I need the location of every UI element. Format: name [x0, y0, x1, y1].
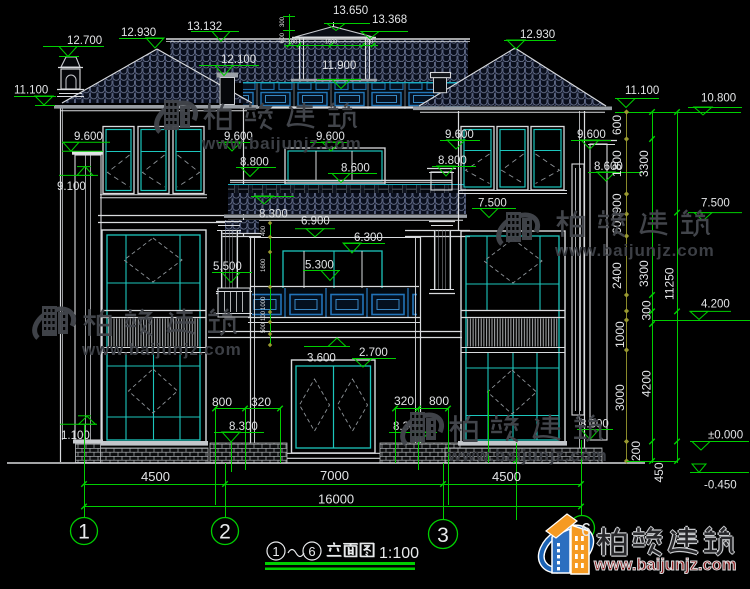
- svg-text:12.700: 12.700: [67, 35, 102, 47]
- svg-text:8.300: 8.300: [229, 421, 258, 433]
- svg-text:5.300: 5.300: [305, 260, 334, 272]
- svg-text:600: 600: [280, 32, 286, 43]
- svg-text:9.100: 9.100: [57, 181, 86, 193]
- svg-text:8.800: 8.800: [438, 155, 467, 167]
- svg-text:5.500: 5.500: [213, 261, 242, 273]
- svg-text:7.500: 7.500: [701, 198, 730, 210]
- svg-text:100: 100: [364, 40, 373, 46]
- svg-text:4.200: 4.200: [701, 299, 730, 311]
- svg-text:2: 2: [219, 521, 231, 544]
- svg-text:800: 800: [429, 394, 449, 408]
- svg-text:10.800: 10.800: [701, 93, 736, 105]
- svg-text:www.baijunjz.com: www.baijunjz.com: [554, 241, 715, 260]
- svg-text:1800: 1800: [610, 150, 624, 177]
- svg-text:300: 300: [640, 300, 654, 320]
- svg-text:3: 3: [437, 524, 449, 547]
- svg-text:9.600: 9.600: [577, 129, 606, 141]
- svg-text:1500: 1500: [325, 40, 337, 46]
- svg-text:-0.450: -0.450: [704, 480, 737, 492]
- svg-text:12.930: 12.930: [520, 29, 555, 41]
- svg-text:3300: 3300: [637, 150, 651, 177]
- svg-text:900: 900: [610, 193, 624, 213]
- svg-text:16000: 16000: [318, 492, 354, 507]
- svg-text:6: 6: [581, 520, 591, 540]
- svg-text:www.baijunjz.com: www.baijunjz.com: [81, 340, 242, 359]
- svg-text:11.100: 11.100: [14, 85, 48, 97]
- svg-text:8.300: 8.300: [259, 209, 288, 221]
- svg-text:1: 1: [78, 521, 90, 544]
- svg-text:2.700: 2.700: [359, 347, 388, 359]
- svg-text:1000: 1000: [261, 296, 267, 310]
- svg-text:12.100: 12.100: [221, 54, 256, 66]
- svg-text:www.baijunjz.com: www.baijunjz.com: [593, 556, 736, 574]
- svg-text:9.600: 9.600: [445, 129, 474, 141]
- svg-text:9.600: 9.600: [74, 131, 103, 143]
- svg-text:200: 200: [629, 441, 643, 461]
- svg-text:4500: 4500: [141, 469, 170, 484]
- svg-text:3000: 3000: [613, 384, 627, 411]
- svg-text:2400: 2400: [610, 262, 624, 289]
- svg-text:11.900: 11.900: [322, 60, 356, 72]
- svg-text:13.650: 13.650: [333, 5, 368, 17]
- svg-text:100: 100: [288, 40, 297, 46]
- svg-text:3300: 3300: [637, 260, 651, 287]
- svg-text:8.600: 8.600: [341, 163, 370, 175]
- svg-text:7.500: 7.500: [478, 198, 507, 210]
- svg-text:±0.000: ±0.000: [708, 430, 743, 442]
- svg-text:11.100: 11.100: [625, 85, 659, 97]
- svg-text:3.600: 3.600: [307, 353, 336, 365]
- svg-text:6.900: 6.900: [301, 216, 330, 228]
- svg-text:100: 100: [261, 310, 267, 321]
- svg-text:1.100: 1.100: [61, 430, 90, 442]
- svg-text:www.baijunjz.com: www.baijunjz.com: [447, 446, 608, 465]
- svg-text:13.368: 13.368: [372, 14, 407, 26]
- svg-text:7000: 7000: [320, 468, 349, 483]
- svg-text:4200: 4200: [640, 370, 654, 397]
- svg-text:11250: 11250: [663, 267, 677, 300]
- svg-text:320: 320: [251, 395, 271, 409]
- svg-text:8.800: 8.800: [240, 157, 269, 169]
- svg-text:4500: 4500: [492, 469, 521, 484]
- svg-text:1000: 1000: [613, 321, 627, 348]
- svg-text:6.300: 6.300: [354, 232, 383, 244]
- svg-text:500: 500: [261, 322, 267, 333]
- svg-text:600: 600: [610, 115, 624, 135]
- svg-text:400: 400: [261, 225, 267, 236]
- svg-text:www.baijunjz.com: www.baijunjz.com: [201, 134, 362, 153]
- svg-text:12.930: 12.930: [121, 27, 156, 39]
- svg-text:1600: 1600: [261, 258, 267, 272]
- svg-text:1:100: 1:100: [379, 545, 419, 562]
- svg-text:6: 6: [308, 544, 315, 559]
- svg-text:800: 800: [212, 395, 232, 409]
- svg-text:300: 300: [280, 16, 286, 27]
- svg-text:450: 450: [652, 462, 666, 482]
- svg-text:1: 1: [272, 544, 279, 559]
